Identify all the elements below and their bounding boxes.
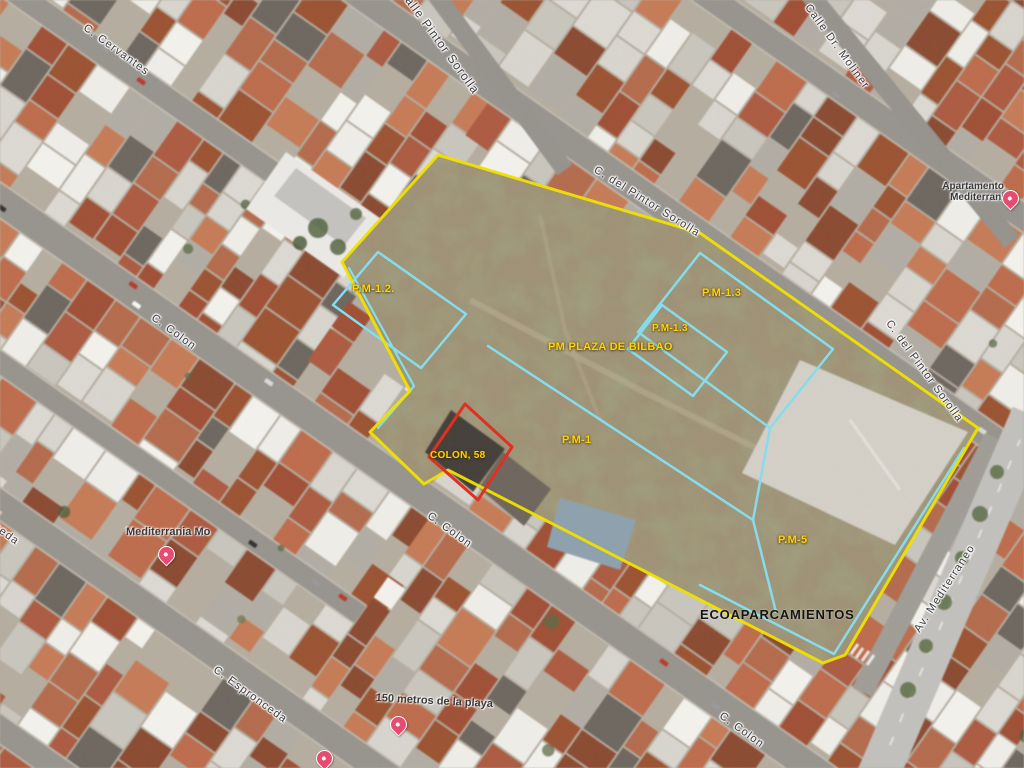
street-label-espronceda-2: C. Espronceda: [0, 486, 21, 548]
poi-label-150-metros: 150 metros de la playa: [375, 692, 493, 710]
street-label-av-mediterraneo: Av. Mediterraneo: [912, 542, 978, 634]
poi-pin-icon[interactable]: [154, 542, 178, 566]
site-label-ecoaparcamientos: ECOAPARCAMIENTOS: [700, 607, 855, 622]
poi-label-mediterrania: Mediterrania Mo: [126, 526, 210, 538]
street-label-cervantes: C. Cervantes: [81, 22, 152, 78]
street-label-espronceda: C. Espronceda: [211, 664, 290, 726]
parcel-label-plaza-bilbao: PM PLAZA DE BILBAO: [548, 341, 673, 353]
parcel-label-colon-58: COLON, 58: [430, 450, 486, 461]
street-label-colon-3: C. Colon: [717, 710, 766, 751]
parcel-label-pm-5: P.M-5: [778, 534, 807, 546]
parcel-label-pm-1: P.M-1: [562, 434, 591, 446]
parcel-label-pm-1-3: P.M-1.3: [702, 287, 741, 299]
poi-pin-icon[interactable]: [386, 712, 410, 736]
street-label-dr-moliner: Calle Dr. Moliner: [802, 2, 871, 91]
poi-pin-icon[interactable]: [312, 746, 336, 768]
street-label-del-pintor-sorolla-2: C. del Pintor Sorolla: [883, 318, 965, 425]
street-label-colon-1: C. Colon: [149, 312, 198, 353]
street-label-pintor-sorolla-top: Calle Pintor Sorolla: [397, 0, 483, 97]
parcel-label-pm-1-3b: P.M-1.3: [652, 323, 688, 334]
parcel-label-pm-1-2: P.M-1.2.: [352, 283, 395, 295]
street-label-del-pintor-sorolla-1: C. del Pintor Sorolla: [592, 164, 703, 239]
poi-label-apartamento: Apartamento Mediterrani: [930, 181, 1004, 203]
map-canvas[interactable]: C. Cervantes Calle Pintor Sorolla Calle …: [0, 0, 1024, 768]
map-labels: C. Cervantes Calle Pintor Sorolla Calle …: [0, 0, 1024, 768]
street-label-colon-2: C. Colon: [425, 510, 474, 551]
